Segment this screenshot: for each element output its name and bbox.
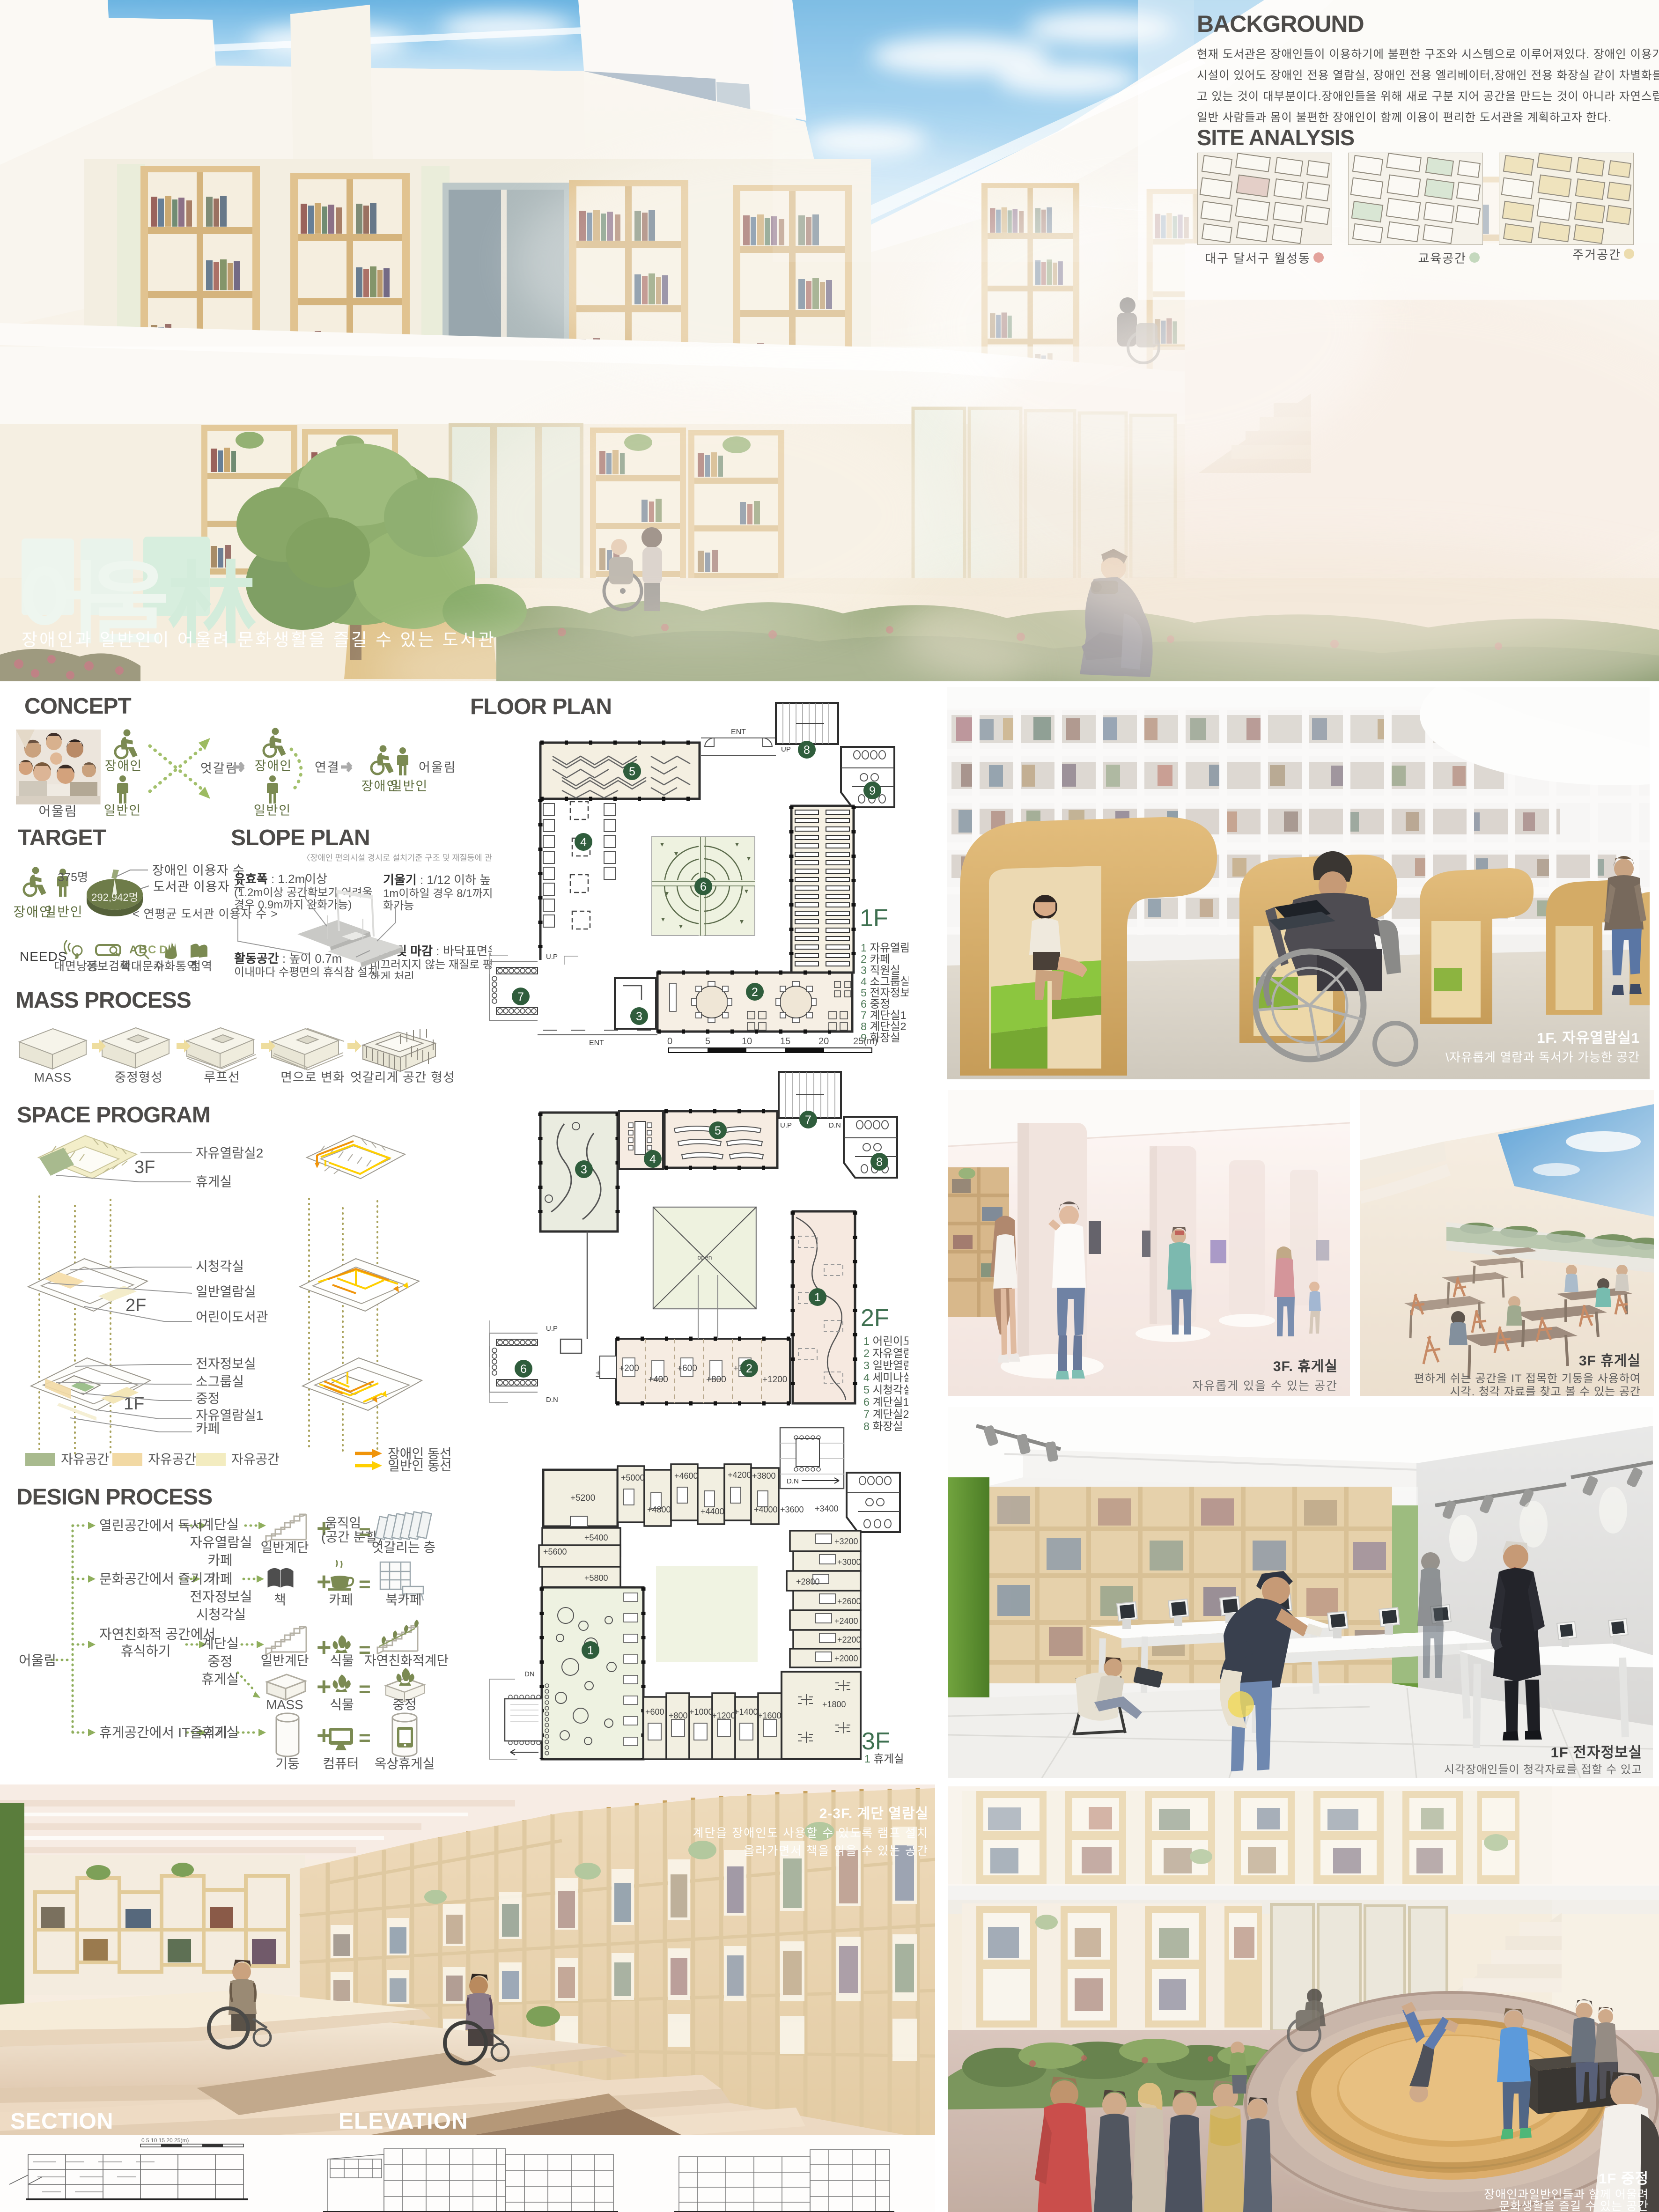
svg-text:+1800: +1800 [822,1700,846,1709]
svg-text:3 일반열람실: 3 일반열람실 [863,1359,908,1371]
svg-text:휴게실: 휴게실 [201,1725,239,1740]
svg-text:시청각실: 시청각실 [196,1259,244,1274]
svg-text:1 어린이도서관: 1 어린이도서관 [863,1335,908,1347]
svg-text:20: 20 [818,1036,829,1047]
svg-text:일반인 동선: 일반인 동선 [388,1459,452,1473]
svg-text:4: 4 [580,836,587,849]
svg-text:자연친화적 공간에서: 자연친화적 공간에서 [99,1627,215,1642]
svg-text:중정형성: 중정형성 [114,1070,162,1084]
svg-text:3: 3 [581,1163,587,1176]
svg-text:4 소그룹실: 4 소그룹실 [861,975,908,988]
svg-text:7: 7 [517,990,524,1003]
svg-text:1m이하일 경우 8/1까지 완: 1m이하일 경우 8/1까지 완 [383,887,492,900]
svg-text:일반인: 일반인 [104,804,142,818]
svg-text:3F: 3F [862,1728,890,1755]
svg-text:루프선: 루프선 [204,1070,240,1084]
svg-text:어울림: 어울림 [419,760,457,774]
svg-text:1F. 자유열람실1: 1F. 자유열람실1 [1537,1030,1640,1046]
svg-text:자유공간: 자유공간 [61,1452,109,1467]
svg-text:1: 1 [814,1291,821,1304]
svg-text:식물: 식물 [330,1697,354,1712]
svg-text:4 세미나실: 4 세미나실 [863,1371,908,1384]
svg-text:컴퓨터: 컴퓨터 [323,1756,359,1771]
svg-text:2-3F. 계단 열람실: 2-3F. 계단 열람실 [819,1806,929,1821]
svg-text:엇갈리는 층: 엇갈리는 층 [372,1540,436,1555]
svg-text:1F: 1F [124,1394,144,1414]
svg-text:D.N: D.N [546,1396,558,1404]
svg-text:3: 3 [636,1010,642,1023]
svg-text:=: = [359,1726,371,1749]
svg-text:장애인: 장애인 [255,759,293,773]
svg-text:ENT: ENT [589,1039,604,1047]
svg-text:+: + [317,1568,332,1596]
svg-text:책: 책 [274,1593,286,1607]
svg-text:1F 중정: 1F 중정 [1599,2170,1649,2187]
svg-text:어울림: 어울림 [19,1653,56,1668]
svg-text:+1400: +1400 [734,1707,758,1717]
svg-text:올라가면서 책을 읽을 수 있는 공간: 올라가면서 책을 읽을 수 있는 공간 [744,1844,929,1858]
svg-text:자유공간: 자유공간 [231,1452,280,1467]
svg-text:전자정보실: 전자정보실 [190,1590,252,1605]
svg-text:2 자유열람실2: 2 자유열람실2 [863,1347,908,1359]
svg-text:D.N: D.N [787,1477,799,1485]
svg-text:+400: +400 [648,1375,668,1385]
svg-text:5 전자정보실: 5 전자정보실 [861,987,908,999]
svg-text:시청각실: 시청각실 [196,1607,246,1622]
svg-text:+1600: +1600 [758,1711,782,1720]
svg-text:휴게실: 휴게실 [196,1174,232,1189]
svg-text:=: = [359,1678,371,1701]
svg-text:어울림: 어울림 [38,804,77,818]
svg-text:U.P: U.P [546,953,558,961]
svg-text:1F: 1F [860,905,888,932]
svg-text:U.P: U.P [780,1121,792,1129]
svg-text:0 5 10 15 20 25(m): 0 5 10 15 20 25(m) [141,2137,189,2144]
svg-text:+2400: +2400 [834,1616,858,1626]
svg-text:+5600: +5600 [543,1547,567,1556]
svg-text:+3000: +3000 [837,1557,861,1567]
svg-text:식물: 식물 [330,1653,354,1668]
svg-text:활동공간 : 높이 0.7m: 활동공간 : 높이 0.7m [234,951,342,966]
svg-text:움직임: 움직임 [325,1516,361,1530]
svg-text:SECTION: SECTION [10,2109,113,2134]
svg-text:+4200: +4200 [728,1470,752,1480]
svg-text:375명: 375명 [58,871,88,884]
svg-text:+800: +800 [706,1375,726,1385]
svg-text:+: + [317,1673,332,1701]
svg-text:일반인: 일반인 [391,779,428,793]
svg-text:카페: 카페 [207,1553,232,1568]
svg-text:5: 5 [705,1036,710,1047]
svg-text:자유열람실: 자유열람실 [190,1535,252,1550]
svg-text:ENT: ENT [731,728,746,736]
svg-text:5: 5 [715,1124,721,1137]
svg-text:일반열람실: 일반열람실 [196,1284,256,1299]
svg-text:면으로 변화: 면으로 변화 [280,1070,345,1084]
svg-text:+200: +200 [619,1364,639,1373]
svg-text:\자유롭게 열람과 독서가 가능한 공간: \자유롭게 열람과 독서가 가능한 공간 [1445,1050,1640,1064]
svg-text:휴식하기: 휴식하기 [121,1644,171,1659]
svg-text:1: 1 [587,1644,594,1657]
svg-text:자유롭게 있을 수 있는 공간: 자유롭게 있을 수 있는 공간 [1192,1379,1338,1393]
svg-text:6: 6 [520,1363,527,1376]
svg-text:+4600: +4600 [674,1471,698,1481]
svg-text:+5800: +5800 [584,1573,608,1583]
svg-text:1 자유열람실: 1 자유열람실 [861,942,908,954]
svg-text:어린이도서관: 어린이도서관 [196,1310,268,1324]
svg-text:+5200: +5200 [570,1493,595,1503]
svg-text:하게 처리: 하게 처리 [370,971,414,979]
svg-text:6 계단실1: 6 계단실1 [863,1396,908,1408]
svg-text:+1200: +1200 [712,1711,736,1720]
svg-text:열린공간에서 독서: 열린공간에서 독서 [99,1519,203,1534]
svg-text:장애인 이용자 수: 장애인 이용자 수 [152,863,245,877]
svg-text:4: 4 [649,1153,656,1166]
svg-text:8 계단실2: 8 계단실2 [861,1020,907,1032]
svg-text:엇갈림: 엇갈림 [200,761,238,775]
svg-text:+1200: +1200 [762,1375,787,1385]
svg-text:3F 휴게실: 3F 휴게실 [1579,1353,1641,1369]
svg-text:전자정보실: 전자정보실 [196,1357,256,1371]
svg-text:카페: 카페 [196,1421,220,1436]
svg-text:25(m): 25(m) [853,1036,877,1047]
svg-text:엇갈리게 공간 형성: 엇갈리게 공간 형성 [350,1070,455,1084]
svg-text:0: 0 [667,1036,672,1047]
svg-text:중정: 중정 [196,1391,220,1406]
svg-text:중정: 중정 [392,1697,417,1712]
svg-text:시각장애인들이 청각자료를 접할 수 있고: 시각장애인들이 청각자료를 접할 수 있고 [1444,1763,1642,1776]
svg-text:편하게 쉬는 공간을 IT 접목한 기둥을 사용하여: 편하게 쉬는 공간을 IT 접목한 기둥을 사용하여 [1414,1372,1641,1385]
svg-text:+600: +600 [645,1707,664,1717]
svg-text:9: 9 [869,784,876,797]
svg-text:+5000: +5000 [621,1473,645,1482]
svg-text:일반계단: 일반계단 [260,1653,309,1668]
svg-text:open: open [697,1253,712,1261]
svg-text:장애인과일반인들과 함께 어울려: 장애인과일반인들과 함께 어울려 [1484,2188,1649,2201]
svg-text:2F: 2F [861,1305,889,1332]
svg-text:UP: UP [781,745,791,753]
svg-text:기울기 : 1/12 이하 높이가: 기울기 : 1/12 이하 높이가 [383,873,492,887]
svg-text:기둥: 기둥 [275,1756,300,1771]
svg-text:카페: 카페 [329,1593,353,1607]
svg-text:+2600: +2600 [837,1597,861,1606]
svg-text:중정: 중정 [207,1654,232,1669]
svg-text:자유열람실1: 자유열람실1 [196,1408,263,1423]
svg-text:3F. 휴게실: 3F. 휴게실 [1273,1359,1338,1374]
svg-text:+4000: +4000 [754,1505,778,1514]
svg-text:+4400: +4400 [700,1507,724,1516]
svg-text:+2200: +2200 [837,1635,861,1644]
svg-text:계단을 장애인도 사용할 수 있도록 램프 설치: 계단을 장애인도 사용할 수 있도록 램프 설치 [693,1827,929,1840]
svg-text:2F: 2F [125,1296,146,1315]
svg-text:=: = [359,1520,371,1543]
svg-text:+800: +800 [669,1711,688,1720]
svg-text:화가능: 화가능 [383,900,414,912]
svg-text:자유열람실2: 자유열람실2 [196,1146,263,1160]
svg-text:문화공간에서 즐기기: 문화공간에서 즐기기 [99,1572,215,1587]
svg-text:+3200: +3200 [834,1537,858,1546]
svg-text:+600: +600 [677,1364,697,1373]
svg-text:소그룹실: 소그룹실 [196,1374,244,1389]
svg-text:MASS: MASS [266,1697,303,1712]
svg-text:카페: 카페 [207,1572,232,1587]
svg-text:+3400: +3400 [815,1504,839,1513]
svg-text:5: 5 [629,765,635,778]
svg-text:5 시청각실: 5 시청각실 [863,1384,908,1396]
svg-text:6 중정: 6 중정 [861,998,890,1010]
svg-text:계단실: 계단실 [201,1517,239,1533]
svg-text:도서관 이용자 수: 도서관 이용자 수 [153,880,246,894]
svg-text:6: 6 [700,880,707,893]
svg-text:MASS: MASS [34,1070,72,1084]
svg-text:8: 8 [876,1156,883,1169]
svg-text:일반인: 일반인 [44,905,83,919]
svg-text:292,942명: 292,942명 [91,892,138,903]
svg-text:7 계단실2: 7 계단실2 [863,1408,908,1420]
svg-text:U.P: U.P [546,1325,558,1333]
svg-text:3F: 3F [134,1158,155,1177]
svg-text:휴게실: 휴게실 [201,1672,239,1687]
svg-text:자연친화적계단: 자연친화적계단 [364,1653,449,1668]
svg-text:2: 2 [752,986,758,999]
svg-text:+2800: +2800 [796,1577,820,1586]
svg-text:+3600: +3600 [780,1505,804,1514]
svg-text:10: 10 [742,1036,752,1047]
svg-text:7 계단실1: 7 계단실1 [861,1009,907,1021]
svg-text:이내마다 수평면의 휴식참 설치: 이내마다 수평면의 휴식참 설치 [234,966,378,979]
svg-text:D.N: D.N [829,1121,841,1129]
svg-text:시각. 청각 자료를 찾고 볼 수 있는 공간: 시각. 청각 자료를 찾고 볼 수 있는 공간 [1450,1386,1641,1396]
svg-text:=: = [359,1573,371,1596]
svg-text:7: 7 [805,1113,811,1127]
svg-text:일반계단: 일반계단 [260,1540,309,1555]
svg-text:미끄러지지 않는 재질로 평탄: 미끄러지지 않는 재질로 평탄 [370,959,492,971]
svg-text:1F 전자정보실: 1F 전자정보실 [1551,1744,1642,1761]
svg-text:15: 15 [780,1036,790,1047]
svg-text:2 카페: 2 카페 [861,953,890,965]
svg-text:8: 8 [804,744,810,757]
svg-text:북카페: 북카페 [385,1593,421,1607]
svg-text:2: 2 [746,1362,752,1375]
svg-text:DN: DN [524,1670,535,1678]
svg-text:자유공간: 자유공간 [148,1452,196,1467]
svg-text:+3800: +3800 [752,1471,776,1481]
svg-text:경우 0.9m까지 완화가능): 경우 0.9m까지 완화가능) [234,899,352,911]
svg-text:3 직원실: 3 직원실 [861,964,900,976]
svg-text:옥상휴게실: 옥상휴게실 [375,1756,435,1771]
svg-text:문화생활을 즐길 수 있는 공간: 문화생활을 즐길 수 있는 공간 [1499,2200,1649,2212]
svg-text:+: + [317,1633,332,1661]
svg-text:점역: 점역 [190,960,213,973]
svg-text:계단실: 계단실 [201,1636,239,1652]
svg-text:+1000: +1000 [689,1707,713,1717]
svg-text:일반인: 일반인 [254,804,292,818]
svg-text:유효폭 : 1.2m이상: 유효폭 : 1.2m이상 [234,872,327,886]
svg-text:〈장애인 편의시설 경시로 설치기준 구조 및 재질등에: 〈장애인 편의시설 경시로 설치기준 구조 및 재질등에 관한 세부시항〉 [302,853,492,863]
svg-text:+4800: +4800 [647,1505,671,1514]
svg-text:ELEVATION: ELEVATION [339,2109,468,2134]
svg-text:+2000: +2000 [834,1654,858,1663]
svg-text:연결: 연결 [315,760,340,774]
svg-text:장애인: 장애인 [105,759,143,773]
svg-text:C D: C D [148,944,167,956]
svg-text:1 휴게실: 1 휴게실 [864,1753,904,1765]
svg-text:+5400: +5400 [584,1533,608,1542]
